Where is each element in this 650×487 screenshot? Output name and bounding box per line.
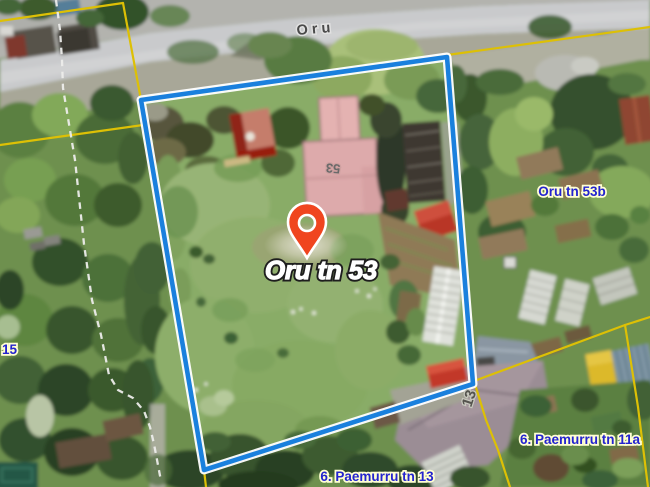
svg-text:53: 53: [325, 160, 341, 176]
svg-text:Oru: Oru: [296, 20, 335, 39]
svg-text:15: 15: [2, 342, 18, 357]
svg-text:6. Paemurru tn 11a: 6. Paemurru tn 11a: [520, 432, 641, 447]
svg-text:Oru tn 53: Oru tn 53: [265, 255, 378, 285]
svg-text:Oru tn 53b: Oru tn 53b: [538, 184, 606, 199]
svg-text:6. Paemurru tn 13: 6. Paemurru tn 13: [320, 469, 434, 484]
